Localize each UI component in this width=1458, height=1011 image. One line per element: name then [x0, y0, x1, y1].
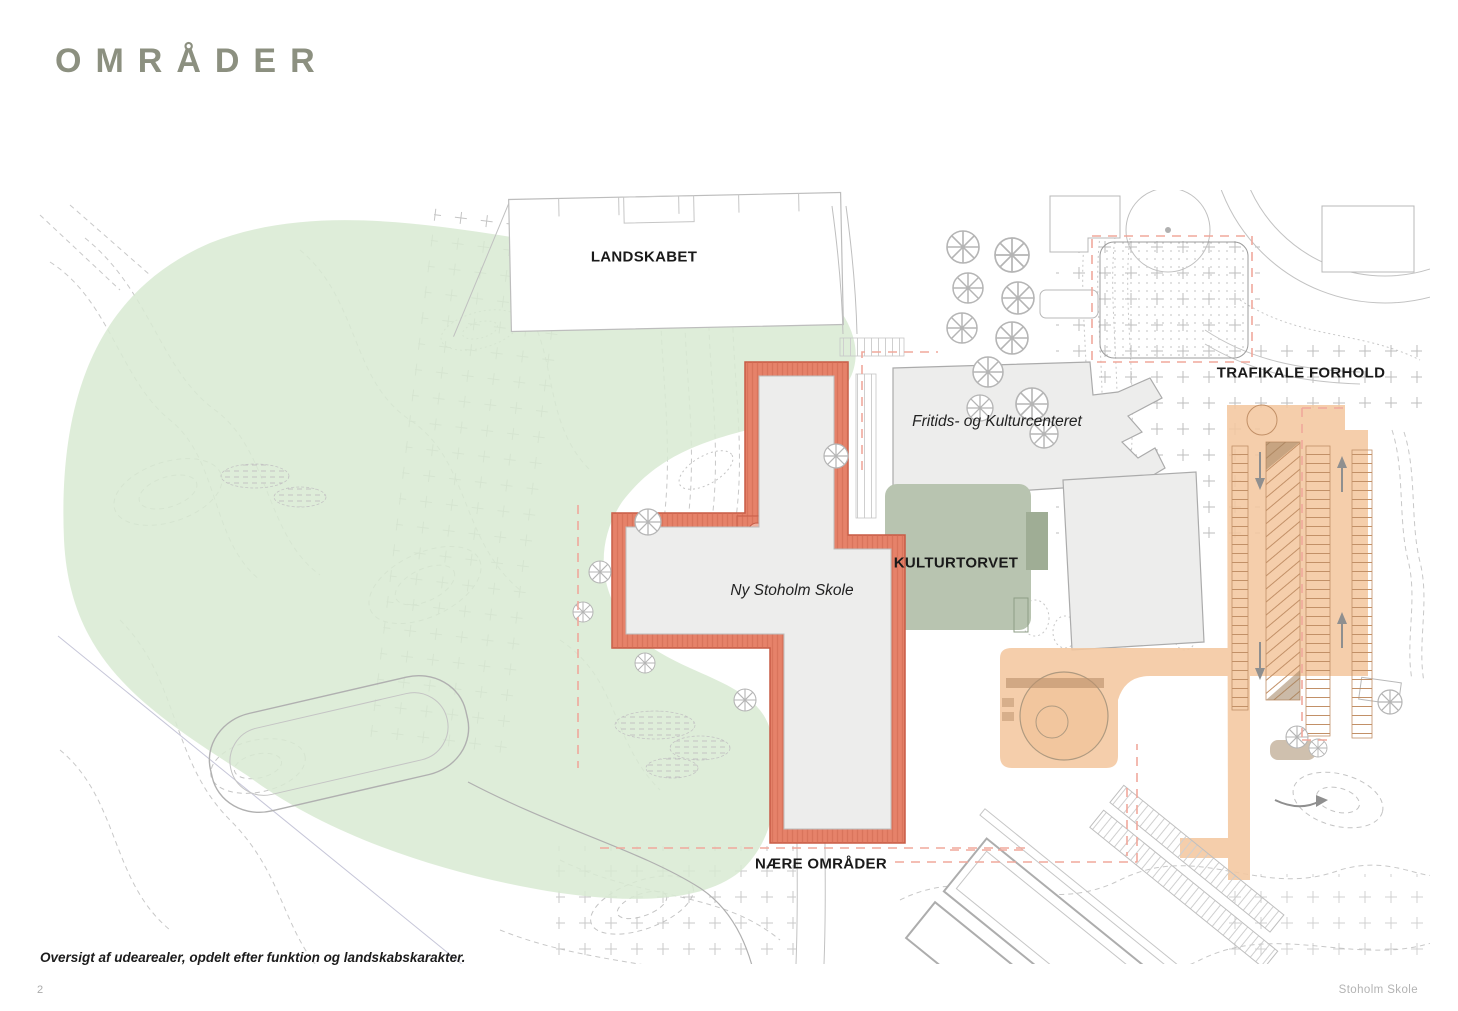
east-hall-building: [1063, 472, 1204, 650]
label-culture-square: KULTURTORVET: [894, 555, 1018, 572]
footer-brand: Stoholm Skole: [1339, 984, 1418, 996]
label-near-areas: NÆRE OMRÅDER: [755, 856, 887, 873]
label-culture-center: Fritids- og Kulturcenteret: [912, 413, 1082, 431]
document-page: OMRÅDER: [0, 0, 1458, 1011]
label-new-school: Ny Stoholm Skole: [730, 582, 853, 600]
label-landscape: LANDSKABET: [591, 249, 697, 266]
label-traffic: TRAFIKALE FORHOLD: [1217, 365, 1385, 382]
figure-caption: Oversigt af udearealer, opdelt efter fun…: [40, 950, 465, 965]
page-number: 2: [37, 984, 43, 996]
existing-school-buildings: [891, 809, 1187, 1011]
site-plan-drawing: [0, 0, 1458, 1011]
